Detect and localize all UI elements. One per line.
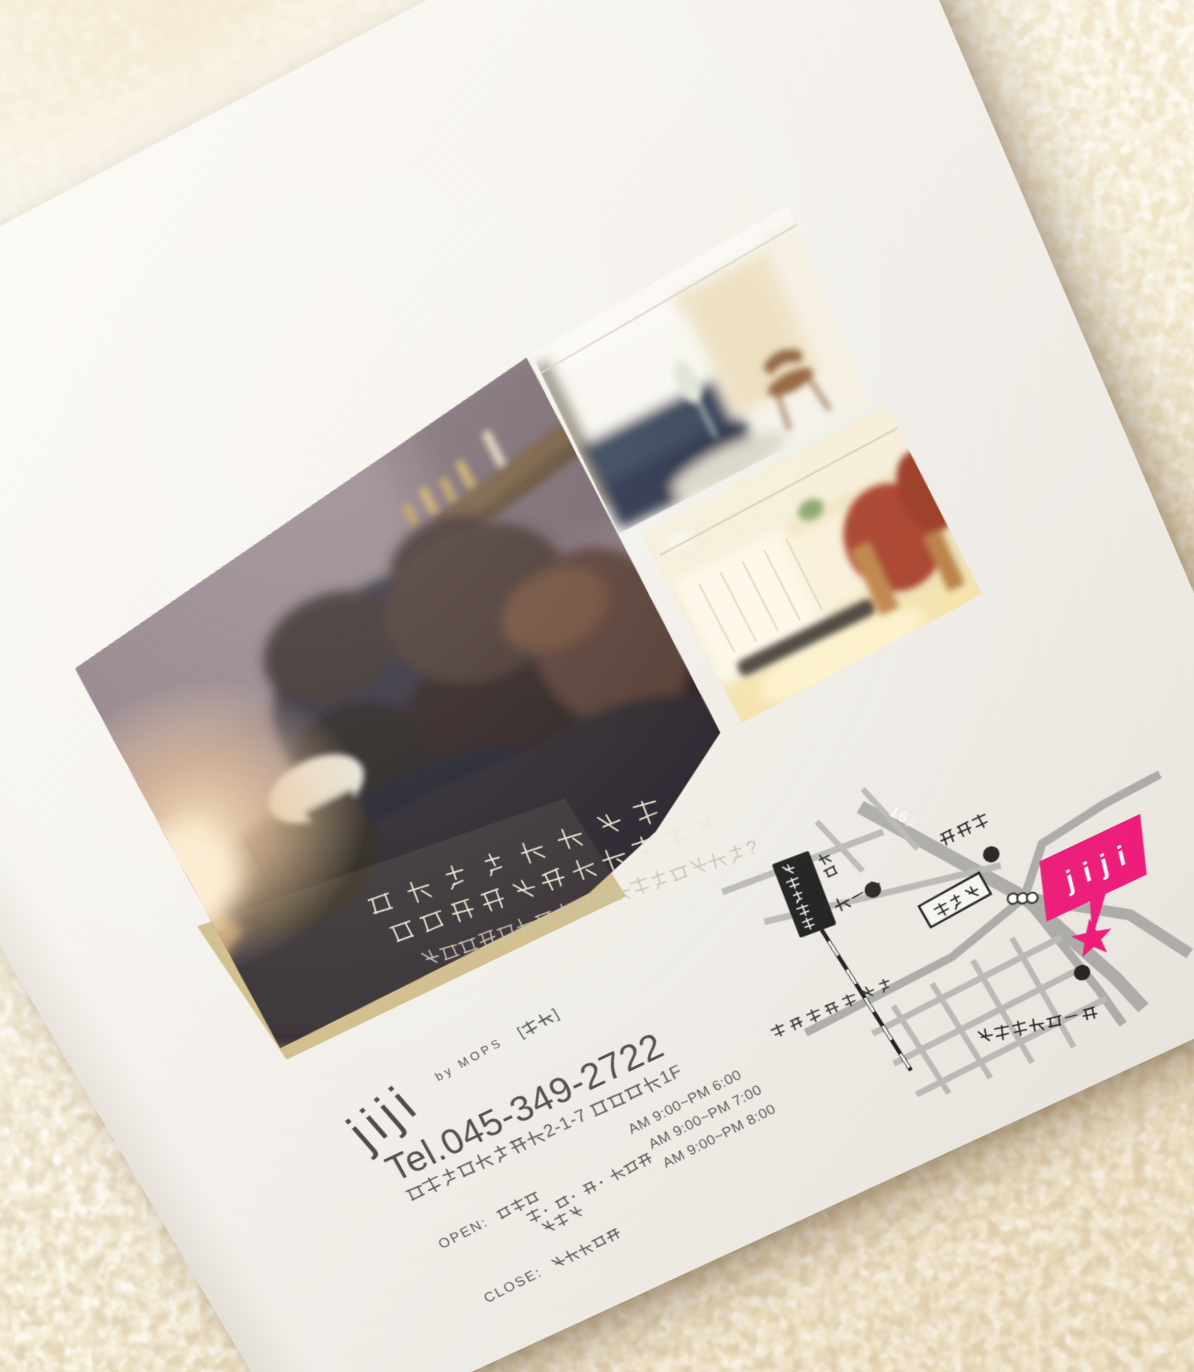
svg-text:OPEN: OPEN [435,1217,486,1252]
svg-text:]: ] [549,1005,562,1022]
svg-text:?: ? [743,836,761,860]
svg-text:by MOPS: by MOPS [432,1035,505,1084]
svg-text:CLOSE: CLOSE [481,1267,540,1306]
